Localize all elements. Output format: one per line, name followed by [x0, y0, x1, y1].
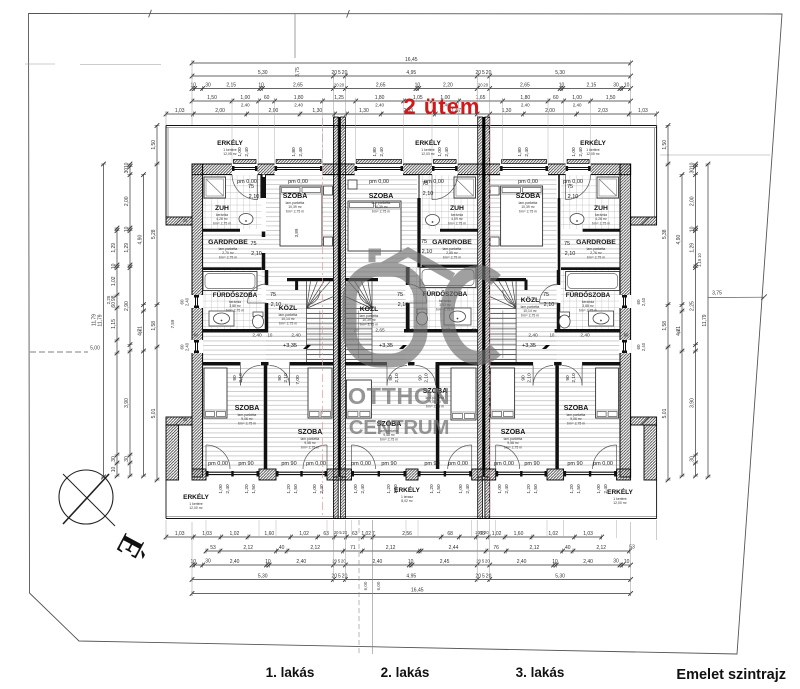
- svg-text:1,80: 1,80: [375, 95, 385, 101]
- svg-text:1,29: 1,29: [690, 243, 696, 253]
- svg-text:2,40: 2,40: [375, 103, 384, 108]
- svg-text:GARDROBE: GARDROBE: [432, 239, 472, 246]
- svg-text:bm= 2,75 m: bm= 2,75 m: [504, 445, 522, 449]
- svg-text:1,20: 1,20: [286, 484, 292, 494]
- svg-text:2,65: 2,65: [293, 83, 303, 89]
- svg-text:2,15: 2,15: [587, 83, 597, 89]
- svg-text:1,20: 1,20: [386, 484, 392, 494]
- svg-text:KÖZL: KÖZL: [279, 303, 298, 312]
- svg-text:2,10: 2,10: [398, 302, 409, 308]
- svg-text:2,56: 2,56: [402, 531, 412, 537]
- svg-text:bm= 2,75 m: bm= 2,75 m: [592, 221, 610, 225]
- svg-text:1,03: 1,03: [583, 531, 593, 537]
- svg-text:1,00: 1,00: [497, 484, 503, 494]
- svg-text:75: 75: [270, 292, 276, 298]
- svg-text:12,00 m²: 12,00 m²: [613, 501, 627, 505]
- svg-text:2,00: 2,00: [215, 108, 225, 114]
- svg-text:2,40: 2,40: [517, 559, 527, 565]
- svg-text:bm= 2,75 m: bm= 2,75 m: [372, 209, 390, 213]
- svg-text:10: 10: [408, 559, 414, 565]
- svg-text:SZOBA: SZOBA: [369, 193, 394, 200]
- svg-text:1,50: 1,50: [151, 140, 157, 150]
- svg-text:bm= 2,75 m: bm= 2,75 m: [567, 421, 585, 425]
- svg-text:2,25: 2,25: [690, 301, 696, 311]
- svg-text:1,80: 1,80: [294, 95, 304, 101]
- svg-text:pm 90: pm 90: [281, 461, 296, 467]
- svg-text:7,59: 7,59: [170, 319, 175, 328]
- svg-text:1,29: 1,29: [111, 243, 117, 253]
- svg-text:2,40: 2,40: [373, 559, 383, 565]
- svg-text:5,01: 5,01: [662, 408, 668, 418]
- svg-text:1,80: 1,80: [517, 147, 523, 157]
- svg-text:2,10: 2,10: [571, 373, 577, 383]
- svg-text:30: 30: [205, 83, 211, 89]
- svg-text:ZUH: ZUH: [450, 205, 464, 212]
- svg-text:1,00: 1,00: [571, 147, 577, 157]
- svg-text:90: 90: [277, 375, 283, 381]
- svg-text:75: 75: [567, 184, 573, 190]
- svg-text:1,00: 1,00: [353, 484, 359, 494]
- svg-text:1,58: 1,58: [662, 321, 668, 331]
- svg-text:1,20: 1,20: [569, 484, 575, 494]
- svg-text:30: 30: [690, 456, 696, 462]
- svg-text:2,45: 2,45: [440, 559, 450, 565]
- svg-text:SZOBA: SZOBA: [501, 429, 526, 436]
- svg-text:3,75: 3,75: [712, 291, 722, 297]
- svg-text:2,40: 2,40: [444, 147, 450, 157]
- svg-text:bm= 2,75 m: bm= 2,75 m: [279, 321, 297, 325]
- svg-text:1,15: 1,15: [111, 319, 117, 329]
- svg-text:2,10: 2,10: [422, 249, 433, 255]
- svg-text:2,40: 2,40: [360, 484, 366, 494]
- svg-text:2,10: 2,10: [251, 251, 262, 257]
- svg-text:GARDROBE: GARDROBE: [576, 239, 616, 246]
- svg-text:20 5 20: 20 5 20: [476, 559, 490, 564]
- svg-text:20 20: 20 20: [334, 83, 345, 88]
- svg-text:ERKÉLY: ERKÉLY: [415, 138, 441, 147]
- svg-text:10: 10: [191, 559, 197, 565]
- svg-text:2,12: 2,12: [243, 545, 253, 551]
- svg-text:1,00: 1,00: [596, 484, 602, 494]
- svg-text:10: 10: [111, 263, 117, 269]
- svg-text:bm= 2,75 m: bm= 2,75 m: [219, 255, 237, 259]
- svg-text:30: 30: [124, 168, 130, 174]
- svg-text:2,10: 2,10: [527, 373, 533, 383]
- svg-text:SZOBA: SZOBA: [564, 405, 589, 412]
- svg-text:5,30: 5,30: [258, 574, 268, 580]
- svg-text:2,65: 2,65: [376, 83, 386, 89]
- svg-text:10: 10: [124, 162, 130, 168]
- svg-text:1,03: 1,03: [202, 531, 212, 537]
- svg-text:pm 0,00: pm 0,00: [208, 461, 228, 467]
- svg-text:1,02: 1,02: [492, 531, 502, 537]
- svg-text:30: 30: [183, 417, 188, 422]
- svg-text:1. lakás: 1. lakás: [266, 665, 315, 680]
- svg-text:pm 0,00: pm 0,00: [448, 461, 468, 467]
- svg-text:1,50: 1,50: [436, 484, 442, 494]
- svg-text:FÜRDŐSZOBA: FÜRDŐSZOBA: [566, 290, 611, 299]
- svg-text:bm= 2,75 m: bm= 2,75 m: [579, 308, 597, 312]
- svg-text:2,10: 2,10: [568, 194, 579, 200]
- svg-text:1,03: 1,03: [175, 531, 185, 537]
- svg-text:11,79: 11,79: [92, 314, 98, 326]
- svg-text:10: 10: [415, 83, 421, 89]
- svg-text:1,50: 1,50: [606, 95, 616, 101]
- svg-text:2,40: 2,40: [244, 147, 250, 157]
- svg-text:75: 75: [422, 181, 428, 187]
- svg-text:75: 75: [564, 241, 570, 247]
- svg-text:4,95: 4,95: [406, 70, 416, 76]
- svg-text:60: 60: [676, 328, 681, 333]
- svg-text:2,40: 2,40: [230, 559, 240, 565]
- svg-text:1,80: 1,80: [372, 147, 378, 157]
- svg-text:2,03: 2,03: [598, 108, 608, 114]
- svg-text:KÖZL: KÖZL: [521, 295, 540, 304]
- svg-text:1,02: 1,02: [299, 531, 309, 537]
- svg-text:2,40: 2,40: [252, 333, 262, 339]
- svg-text:60: 60: [194, 333, 199, 338]
- svg-text:4,95: 4,95: [406, 574, 416, 580]
- svg-text:12,03 m²: 12,03 m²: [421, 152, 435, 156]
- svg-text:OTTHON: OTTHON: [348, 383, 450, 409]
- svg-text:90: 90: [565, 375, 571, 381]
- svg-text:1,25: 1,25: [334, 95, 344, 101]
- svg-text:20 5 20: 20 5 20: [334, 530, 348, 535]
- svg-text:SZOBA: SZOBA: [516, 193, 541, 200]
- svg-text:1,15 10: 1,15 10: [697, 253, 702, 267]
- svg-text:SZOBA: SZOBA: [235, 405, 260, 412]
- svg-text:1,50: 1,50: [293, 484, 299, 494]
- svg-text:1,80: 1,80: [520, 95, 530, 101]
- svg-text:10: 10: [690, 226, 696, 232]
- svg-text:pm 0,00: pm 0,00: [351, 461, 371, 467]
- svg-text:2,10: 2,10: [394, 373, 400, 383]
- svg-text:5,30: 5,30: [555, 574, 565, 580]
- svg-text:2,40: 2,40: [465, 484, 471, 494]
- svg-text:3,89: 3,89: [294, 228, 299, 237]
- svg-text:+3,35: +3,35: [283, 343, 297, 349]
- svg-text:4,90: 4,90: [138, 235, 144, 245]
- svg-text:10: 10: [552, 559, 558, 565]
- svg-text:30: 30: [205, 559, 211, 565]
- svg-text:2,40: 2,40: [578, 147, 584, 157]
- svg-text:2,40: 2,40: [225, 484, 231, 494]
- svg-text:1,29: 1,29: [124, 243, 130, 253]
- svg-text:30: 30: [124, 456, 130, 462]
- svg-text:90: 90: [232, 375, 238, 381]
- svg-text:12,00 m²: 12,00 m²: [189, 506, 203, 510]
- svg-text:1,00: 1,00: [240, 95, 250, 101]
- svg-text:4,90: 4,90: [676, 235, 682, 245]
- svg-text:10: 10: [690, 162, 696, 168]
- svg-text:2,40: 2,40: [641, 297, 646, 306]
- svg-text:2,40: 2,40: [580, 333, 590, 339]
- svg-text:bm= 2,75 m: bm= 2,75 m: [213, 221, 231, 225]
- svg-text:2,40: 2,40: [296, 559, 306, 565]
- svg-text:1,60: 1,60: [264, 531, 274, 537]
- svg-text:ERKÉLY: ERKÉLY: [183, 492, 209, 501]
- svg-text:pm 0,00: pm 0,00: [369, 179, 389, 185]
- svg-text:bm= 2,75 m: bm= 2,75 m: [448, 221, 466, 225]
- svg-text:63: 63: [323, 531, 329, 537]
- svg-text:90: 90: [388, 375, 394, 381]
- svg-text:2,20: 2,20: [443, 83, 453, 89]
- svg-text:16,45: 16,45: [405, 57, 418, 63]
- svg-text:2,40: 2,40: [528, 333, 538, 339]
- svg-text:20 20: 20 20: [478, 83, 489, 88]
- svg-text:1,80: 1,80: [291, 147, 297, 157]
- svg-text:10: 10: [624, 559, 630, 565]
- svg-text:1,30: 1,30: [312, 108, 322, 114]
- svg-text:3,90: 3,90: [124, 398, 130, 408]
- svg-text:76: 76: [493, 545, 499, 551]
- svg-text:2,40: 2,40: [521, 103, 530, 108]
- svg-text:2,40: 2,40: [319, 484, 325, 494]
- svg-text:2,40: 2,40: [641, 342, 646, 351]
- svg-text:53: 53: [629, 545, 635, 551]
- svg-text:CENTRUM: CENTRUM: [349, 416, 449, 439]
- svg-text:2,40: 2,40: [524, 147, 530, 157]
- svg-text:Emelet szintrajz: Emelet szintrajz: [676, 667, 786, 683]
- svg-text:2,00: 2,00: [545, 108, 555, 114]
- svg-text:KÖZL: KÖZL: [360, 304, 379, 313]
- svg-text:75: 75: [248, 184, 254, 190]
- svg-text:60: 60: [264, 95, 270, 101]
- svg-text:bm= 2,75 m: bm= 2,75 m: [443, 255, 461, 259]
- svg-text:+3,35: +3,35: [522, 343, 536, 349]
- svg-text:40: 40: [565, 545, 571, 551]
- svg-text:SZOBA: SZOBA: [298, 429, 323, 436]
- svg-text:pm 90: pm 90: [424, 461, 439, 467]
- svg-text:30: 30: [183, 218, 188, 223]
- svg-text:2,44: 2,44: [449, 545, 459, 551]
- svg-text:71: 71: [350, 545, 356, 551]
- svg-text:10: 10: [258, 83, 264, 89]
- svg-text:2. lakás: 2. lakás: [381, 665, 430, 680]
- svg-text:bm= 2,75 m: bm= 2,75 m: [226, 308, 244, 312]
- svg-text:10: 10: [268, 333, 273, 338]
- svg-text:ZUH: ZUH: [215, 205, 229, 212]
- svg-text:pm 90: pm 90: [524, 461, 539, 467]
- svg-text:FÜRDŐSZOBA: FÜRDŐSZOBA: [213, 290, 258, 299]
- svg-text:60: 60: [624, 333, 629, 338]
- svg-text:1,00: 1,00: [218, 484, 224, 494]
- svg-text:2,10: 2,10: [424, 373, 430, 383]
- svg-text:2,10: 2,10: [238, 373, 244, 383]
- svg-text:2,10: 2,10: [249, 194, 260, 200]
- svg-text:1,50: 1,50: [533, 484, 539, 494]
- svg-text:2,90: 2,90: [124, 301, 130, 311]
- svg-text:2,40: 2,40: [573, 103, 582, 108]
- svg-text:2,40: 2,40: [504, 484, 510, 494]
- svg-text:2,12: 2,12: [310, 545, 320, 551]
- svg-text:2,40: 2,40: [294, 103, 303, 108]
- svg-text:5,01: 5,01: [151, 408, 157, 418]
- svg-text:1,02 7: 1,02 7: [361, 531, 375, 537]
- svg-text:2,00: 2,00: [124, 196, 130, 206]
- svg-text:bm= 2,75 m: bm= 2,75 m: [521, 313, 539, 317]
- svg-text:75: 75: [421, 239, 427, 245]
- svg-text:1,50: 1,50: [251, 484, 257, 494]
- svg-text:pm 0,00: pm 0,00: [518, 179, 538, 185]
- svg-text:pm 90: pm 90: [238, 461, 253, 467]
- svg-text:pm 0,00: pm 0,00: [494, 461, 514, 467]
- svg-text:2 ütem: 2 ütem: [404, 94, 481, 119]
- svg-text:ERKÉLY: ERKÉLY: [394, 485, 420, 494]
- svg-text:2,10: 2,10: [423, 191, 434, 197]
- svg-text:2,00: 2,00: [269, 108, 279, 114]
- svg-text:bm= 2,75 m: bm= 2,75 m: [286, 209, 304, 213]
- svg-text:20 5 20: 20 5 20: [475, 574, 491, 580]
- svg-text:53: 53: [210, 545, 216, 551]
- svg-text:ZUH: ZUH: [594, 205, 608, 212]
- svg-text:1,20: 1,20: [429, 484, 435, 494]
- svg-text:2,12: 2,12: [386, 545, 396, 551]
- svg-text:30: 30: [690, 168, 696, 174]
- svg-text:1,20: 1,20: [244, 484, 250, 494]
- svg-text:ERKÉLY: ERKÉLY: [607, 487, 633, 496]
- svg-text:5,38: 5,38: [662, 229, 668, 239]
- svg-text:1,60: 1,60: [514, 531, 524, 537]
- svg-text:1,03: 1,03: [175, 108, 185, 114]
- svg-text:3. lakás: 3. lakás: [516, 665, 565, 680]
- svg-text:5,30: 5,30: [258, 70, 268, 76]
- svg-text:2,40: 2,40: [583, 559, 593, 565]
- svg-text:10: 10: [124, 226, 130, 232]
- svg-text:10: 10: [550, 333, 555, 338]
- svg-text:10: 10: [624, 83, 630, 89]
- svg-text:1,20: 1,20: [526, 484, 532, 494]
- svg-text:bm= 2,75 m: bm= 2,75 m: [238, 421, 256, 425]
- svg-text:63: 63: [352, 531, 358, 537]
- svg-text:GARDROBE: GARDROBE: [208, 239, 248, 246]
- svg-text:pm 0,00: pm 0,00: [288, 179, 308, 185]
- svg-text:SZOBA: SZOBA: [283, 193, 308, 200]
- svg-text:2,10: 2,10: [565, 251, 576, 257]
- svg-text:10: 10: [111, 467, 117, 473]
- svg-text:2,12: 2,12: [596, 545, 606, 551]
- svg-text:1,50: 1,50: [207, 95, 217, 101]
- svg-text:10: 10: [409, 328, 414, 333]
- svg-text:1,58: 1,58: [151, 321, 157, 331]
- svg-text:75: 75: [543, 292, 549, 298]
- svg-text:2,40: 2,40: [185, 297, 190, 306]
- svg-text:6,00: 6,00: [363, 581, 368, 590]
- svg-text:pm 0,00: pm 0,00: [306, 461, 326, 467]
- svg-text:ERKÉLY: ERKÉLY: [217, 138, 243, 147]
- svg-text:1,00: 1,00: [572, 95, 582, 101]
- svg-text:2,40: 2,40: [379, 147, 385, 157]
- svg-text:1,30: 1,30: [502, 108, 512, 114]
- svg-text:1,50: 1,50: [662, 140, 668, 150]
- svg-text:1,00: 1,00: [237, 147, 243, 157]
- svg-text:10: 10: [265, 559, 271, 565]
- svg-text:1,03: 1,03: [638, 108, 648, 114]
- svg-text:8,02 m²: 8,02 m²: [401, 499, 413, 503]
- svg-text:2,10: 2,10: [544, 302, 555, 308]
- svg-text:7,00: 7,00: [295, 375, 301, 385]
- svg-text:68: 68: [447, 531, 453, 537]
- svg-text:ERKÉLY: ERKÉLY: [580, 138, 606, 147]
- svg-text:pm 90: pm 90: [567, 461, 582, 467]
- svg-text:1,00: 1,00: [458, 484, 464, 494]
- svg-text:2,25: 2,25: [106, 295, 111, 304]
- svg-text:5,00: 5,00: [90, 346, 100, 352]
- svg-text:5,28: 5,28: [151, 229, 157, 239]
- svg-text:20: 20: [472, 328, 477, 333]
- svg-text:bm= 2,75 m: bm= 2,75 m: [519, 209, 537, 213]
- svg-text:60: 60: [553, 95, 559, 101]
- svg-text:2,40: 2,40: [241, 103, 250, 108]
- svg-text:1,00: 1,00: [437, 147, 443, 157]
- svg-text:16,45: 16,45: [411, 588, 424, 594]
- svg-text:30: 30: [613, 83, 619, 89]
- svg-text:5,30: 5,30: [555, 70, 565, 76]
- svg-text:1,00: 1,00: [312, 484, 318, 494]
- svg-text:2,40: 2,40: [298, 147, 304, 157]
- svg-text:12,05 m²: 12,05 m²: [223, 152, 237, 156]
- svg-text:20 5 20: 20 5 20: [475, 70, 491, 76]
- svg-text:75: 75: [250, 241, 256, 247]
- svg-text:10: 10: [191, 83, 197, 89]
- svg-text:bm= 2,75 m: bm= 2,75 m: [587, 255, 605, 259]
- svg-text:2,65: 2,65: [375, 328, 385, 334]
- svg-text:20 5 20: 20 5 20: [332, 559, 346, 564]
- svg-text:75: 75: [397, 292, 403, 298]
- svg-text:3,75: 3,75: [295, 67, 301, 77]
- svg-text:3,90: 3,90: [690, 398, 696, 408]
- svg-text:1,02: 1,02: [230, 531, 240, 537]
- svg-text:10: 10: [559, 83, 565, 89]
- svg-text:90: 90: [521, 375, 527, 381]
- svg-text:bm= 2,75 m: bm= 2,75 m: [360, 322, 378, 326]
- svg-text:2,00: 2,00: [690, 196, 696, 206]
- svg-text:pm 0,00: pm 0,00: [593, 461, 613, 467]
- svg-text:11,79: 11,79: [98, 314, 104, 326]
- svg-text:2,65: 2,65: [520, 83, 530, 89]
- svg-text:pm 90: pm 90: [381, 461, 396, 467]
- svg-text:11,79: 11,79: [702, 314, 708, 326]
- svg-text:1,50: 1,50: [576, 484, 582, 494]
- svg-text:1,30: 1,30: [359, 108, 369, 114]
- svg-text:2,40: 2,40: [291, 333, 301, 339]
- svg-text:60 98: 60 98: [111, 295, 117, 307]
- svg-text:1,02: 1,02: [548, 531, 558, 537]
- svg-text:12,05 m²: 12,05 m²: [586, 152, 600, 156]
- svg-text:30: 30: [613, 559, 619, 565]
- svg-text:2,40: 2,40: [185, 342, 190, 351]
- svg-text:90: 90: [418, 375, 424, 381]
- svg-text:2,12: 2,12: [530, 545, 540, 551]
- svg-text:40: 40: [279, 545, 285, 551]
- svg-text:60: 60: [138, 328, 143, 333]
- svg-text:bm= 2,75 m: bm= 2,75 m: [301, 445, 319, 449]
- svg-text:6,00: 6,00: [376, 581, 381, 590]
- svg-text:2,10: 2,10: [283, 373, 289, 383]
- svg-text:1,02: 1,02: [111, 276, 117, 286]
- svg-text:+3,35: +3,35: [379, 343, 393, 349]
- svg-text:2,15: 2,15: [226, 83, 236, 89]
- svg-text:30: 30: [111, 456, 117, 462]
